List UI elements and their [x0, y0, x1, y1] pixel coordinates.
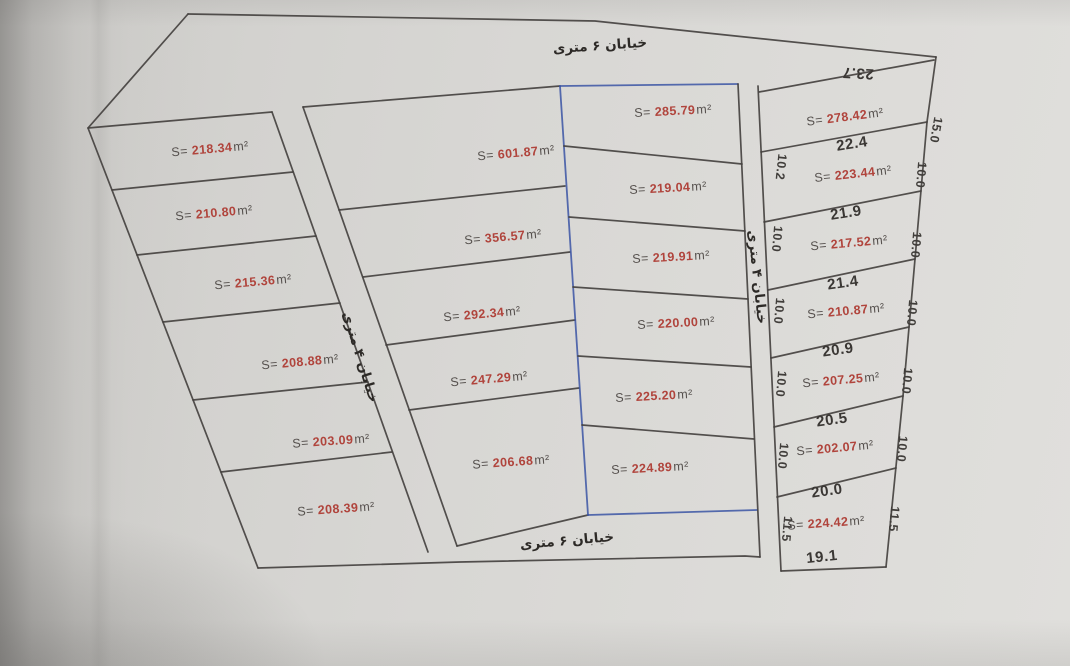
area-prefix: S=: [810, 238, 828, 253]
dimension-label: 23.7: [842, 64, 874, 83]
parcel-line: [588, 510, 757, 515]
area-prefix: S=: [464, 232, 482, 247]
area-unit: m²: [237, 203, 254, 218]
area-unit: m²: [276, 272, 293, 287]
dimension-label: 19.1: [805, 547, 838, 567]
area-unit: m²: [849, 513, 865, 528]
parcel-line: [137, 236, 316, 255]
parcel-line: [560, 84, 738, 86]
area-unit: m²: [694, 248, 710, 263]
parcel-line: [339, 186, 565, 210]
area-unit: m²: [534, 452, 550, 467]
area-prefix: S=: [292, 436, 309, 451]
plan-boundary-lines: [0, 0, 1070, 666]
area-value: 285.79: [654, 103, 695, 119]
area-prefix: S=: [443, 309, 461, 324]
area-unit: m²: [691, 179, 707, 194]
area-value: 224.42: [807, 514, 849, 531]
area-prefix: S=: [807, 306, 825, 321]
parcel-line: [88, 112, 272, 128]
west-road-edge: [303, 107, 457, 546]
area-prefix: S=: [814, 169, 832, 185]
dimension-label: 10.0: [775, 442, 791, 469]
dimension-label: 10.0: [908, 231, 924, 258]
dimension-label: 10.2: [773, 153, 790, 181]
area-unit: m²: [869, 301, 886, 316]
area-unit: m²: [673, 459, 689, 474]
area-prefix: S=: [214, 277, 232, 292]
area-unit: m²: [233, 139, 250, 154]
parcel-line: [573, 287, 748, 299]
parcel-line: [112, 172, 293, 190]
area-value: 224.89: [631, 460, 672, 476]
area-prefix: S=: [637, 317, 654, 332]
area-prefix: S=: [611, 462, 628, 477]
area-unit: m²: [699, 314, 715, 329]
area-unit: m²: [354, 431, 370, 446]
area-unit: m²: [875, 163, 892, 179]
parcel-line: [569, 217, 745, 231]
area-unit: m²: [359, 499, 375, 514]
area-unit: m²: [539, 143, 556, 158]
area-unit: m²: [505, 304, 522, 319]
parcel-line: [163, 303, 340, 322]
area-value: 219.91: [652, 249, 693, 265]
area-prefix: S=: [450, 374, 468, 389]
area-unit: m²: [677, 387, 693, 402]
parcel-line: [564, 146, 742, 164]
area-value: 219.04: [649, 180, 690, 196]
bottom-right-border: [781, 567, 886, 571]
outer-left-border: [88, 14, 258, 568]
area-value: 206.68: [492, 453, 534, 470]
area-value: 208.39: [317, 500, 359, 517]
parcel-line: [409, 388, 579, 410]
dimension-label: 10.0: [769, 225, 785, 252]
area-unit: m²: [696, 102, 712, 117]
area-prefix: S=: [261, 357, 279, 372]
dimension-label: 10.0: [899, 367, 915, 394]
dimension-label: 10.0: [773, 370, 789, 397]
parcel-line: [578, 356, 751, 367]
area-prefix: S=: [175, 208, 193, 223]
area-prefix: S=: [632, 251, 649, 266]
area-unit: m²: [872, 233, 889, 248]
area-unit: m²: [512, 369, 529, 384]
parcel-line: [193, 382, 368, 400]
area-prefix: S=: [171, 144, 189, 159]
scanned-plan-photo: خیابان ۶ متری خیابان ۶ متری خیابان ۴ متر…: [0, 0, 1070, 666]
area-value: 220.00: [657, 315, 698, 331]
parcel-line: [386, 320, 575, 345]
area-unit: m²: [867, 105, 884, 121]
area-unit: m²: [526, 227, 543, 242]
dimension-label: 10.0: [904, 299, 920, 326]
dimension-label: 10.0: [894, 435, 910, 462]
area-prefix: S=: [615, 390, 632, 405]
dimension-label: 11.5: [886, 506, 902, 533]
area-prefix: S=: [477, 148, 495, 163]
area-prefix: S=: [472, 457, 489, 472]
parcel-line: [363, 252, 570, 277]
area-prefix: S=: [806, 113, 824, 129]
area-unit: m²: [323, 352, 340, 367]
area-prefix: S=: [796, 443, 814, 458]
area-prefix: S=: [629, 182, 646, 197]
area-prefix: S=: [634, 105, 651, 120]
area-value: 203.09: [312, 432, 354, 449]
parcel-line: [582, 425, 754, 439]
outer-bottom-border: [258, 556, 760, 568]
area-prefix: S=: [297, 504, 314, 519]
area-unit: m²: [864, 370, 881, 385]
parcel-line: [303, 86, 560, 107]
parcel-line: [560, 86, 588, 515]
parcel-line: [221, 452, 392, 472]
dimension-label: 10.0: [771, 297, 787, 324]
area-value: 225.20: [635, 388, 676, 404]
area-prefix: S=: [802, 375, 820, 390]
area-unit: m²: [858, 438, 875, 453]
dimension-label: 11.5: [779, 516, 795, 543]
dimension-label: 10.0: [913, 161, 929, 188]
